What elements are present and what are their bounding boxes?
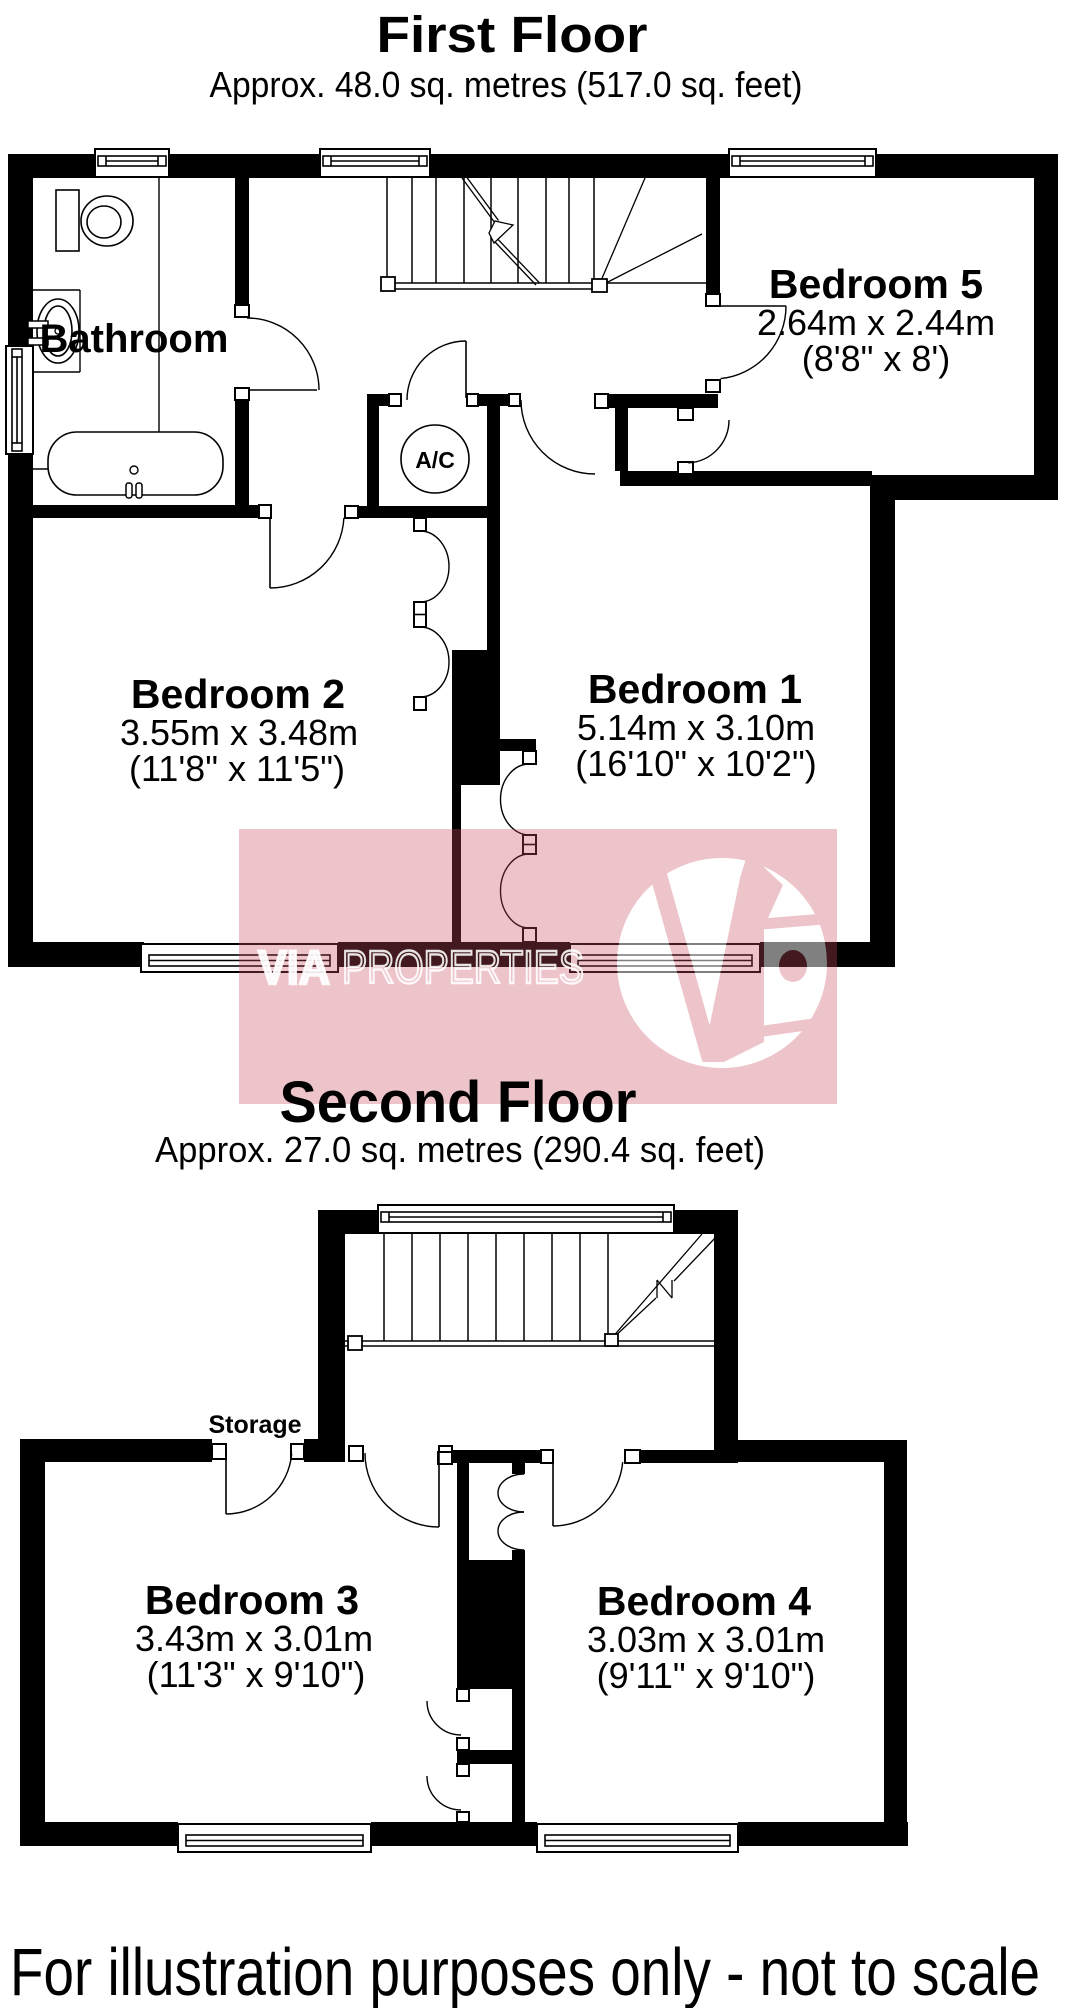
svg-text:Bedroom 4: Bedroom 4: [597, 1578, 811, 1624]
svg-text:Bedroom 3: Bedroom 3: [145, 1577, 359, 1623]
svg-text:(9'11" x 9'10"): (9'11" x 9'10"): [597, 1655, 816, 1696]
svg-text:3.03m x 3.01m: 3.03m x 3.01m: [587, 1619, 825, 1660]
svg-text:A/C: A/C: [415, 447, 455, 473]
svg-text:(11'8" x 11'5"): (11'8" x 11'5"): [129, 748, 345, 789]
svg-text:5.14m x 3.10m: 5.14m x 3.10m: [577, 707, 815, 748]
svg-text:Bathroom: Bathroom: [40, 317, 229, 361]
svg-text:(11'3" x 9'10"): (11'3" x 9'10"): [147, 1654, 366, 1695]
svg-text:For illustration purposes only: For illustration purposes only - not to …: [10, 1935, 1040, 2008]
svg-text:Storage: Storage: [208, 1411, 301, 1439]
svg-text:3.55m x 3.48m: 3.55m x 3.48m: [120, 712, 358, 753]
svg-text:(16'10" x 10'2"): (16'10" x 10'2"): [575, 743, 816, 784]
svg-text:3.43m x 3.01m: 3.43m x 3.01m: [135, 1618, 373, 1659]
svg-text:Second Floor: Second Floor: [280, 1070, 637, 1135]
svg-text:Approx. 27.0 sq. metres (290.4: Approx. 27.0 sq. metres (290.4 sq. feet): [155, 1129, 765, 1170]
svg-text:2.64m x 2.44m: 2.64m x 2.44m: [757, 302, 995, 343]
svg-text:First Floor: First Floor: [377, 6, 648, 63]
svg-text:Bedroom 1: Bedroom 1: [588, 666, 802, 712]
svg-text:(8'8" x 8'): (8'8" x 8'): [802, 338, 951, 379]
svg-text:Bedroom 2: Bedroom 2: [131, 671, 345, 717]
svg-text:VIA: VIA: [258, 942, 330, 995]
svg-text:PROPERTIES: PROPERTIES: [342, 941, 584, 993]
svg-text:Approx. 48.0 sq. metres (517.0: Approx. 48.0 sq. metres (517.0 sq. feet): [210, 64, 803, 105]
svg-text:Bedroom 5: Bedroom 5: [769, 261, 983, 307]
